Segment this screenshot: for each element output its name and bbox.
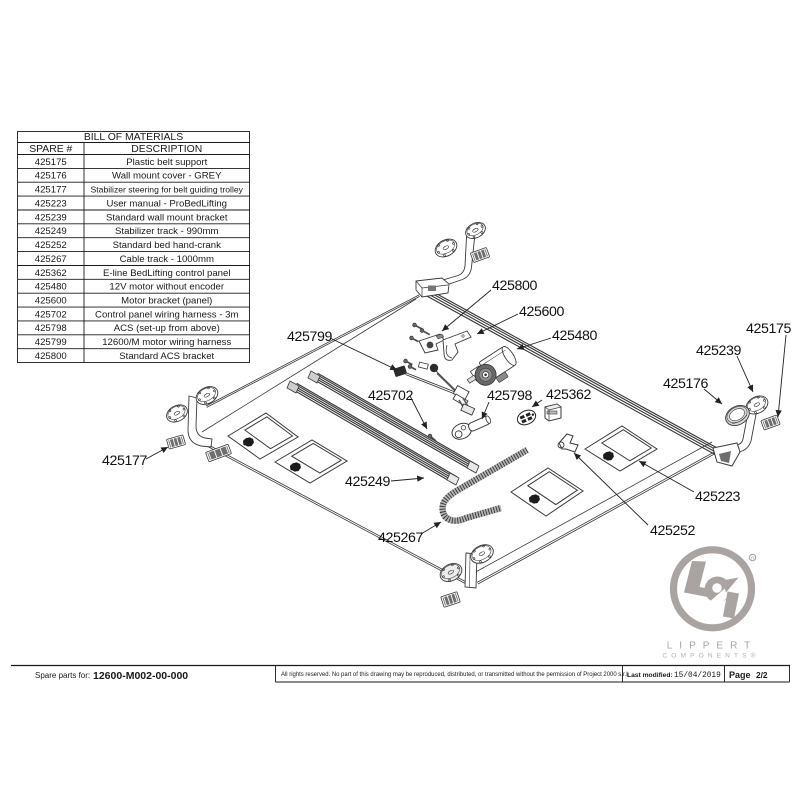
svg-text:425702: 425702	[368, 388, 413, 404]
svg-text:12600/M motor wiring harness: 12600/M motor wiring harness	[102, 337, 231, 348]
svg-text:425600: 425600	[35, 296, 67, 307]
svg-text:Cable track - 1000mm: Cable track - 1000mm	[120, 254, 214, 265]
svg-text:E-line BedLifting control pane: E-line BedLifting control panel	[103, 268, 230, 279]
svg-text:LIPPERT: LIPPERT	[667, 641, 758, 652]
svg-text:425252: 425252	[35, 240, 67, 251]
svg-text:425176: 425176	[663, 376, 708, 392]
svg-text:425799: 425799	[35, 337, 67, 348]
svg-text:425239: 425239	[696, 343, 741, 359]
svg-text:12V motor without encoder: 12V motor without encoder	[109, 282, 224, 293]
svg-text:Standard wall mount bracket: Standard wall mount bracket	[106, 212, 228, 223]
svg-text:DESCRIPTION: DESCRIPTION	[131, 144, 202, 155]
svg-text:Spare parts for:: Spare parts for:	[35, 671, 90, 680]
svg-text:15/04/2019: 15/04/2019	[674, 672, 721, 680]
svg-text:COMPONENTS®: COMPONENTS®	[662, 652, 759, 660]
svg-text:425223: 425223	[695, 489, 740, 505]
svg-text:425800: 425800	[35, 351, 67, 362]
svg-text:Stabilizer steering for belt g: Stabilizer steering for belt guiding tro…	[91, 185, 244, 195]
svg-text:425175: 425175	[746, 321, 791, 337]
svg-text:425798: 425798	[487, 388, 532, 404]
svg-text:2/2: 2/2	[756, 670, 768, 680]
svg-text:425799: 425799	[287, 329, 332, 345]
svg-text:Control panel wiring harness -: Control panel wiring harness - 3m	[95, 309, 238, 320]
svg-text:BILL OF MATERIALS: BILL OF MATERIALS	[84, 132, 183, 143]
svg-text:ACS (set-up from above): ACS (set-up from above)	[114, 323, 220, 334]
svg-text:425800: 425800	[492, 278, 537, 294]
svg-text:Page: Page	[729, 670, 751, 680]
svg-text:425175: 425175	[35, 157, 67, 168]
svg-text:Wall mount cover - GREY: Wall mount cover - GREY	[112, 171, 222, 182]
svg-text:All rights reserved. No part o: All rights reserved. No part of this dra…	[281, 672, 630, 678]
svg-text:425480: 425480	[552, 328, 597, 344]
svg-text:425252: 425252	[650, 523, 695, 539]
svg-text:425249: 425249	[35, 226, 67, 237]
svg-text:425362: 425362	[546, 387, 591, 403]
svg-text:425239: 425239	[35, 212, 67, 223]
svg-text:Motor bracket (panel): Motor bracket (panel)	[121, 296, 212, 307]
svg-text:Stabilizer track - 990mm: Stabilizer track - 990mm	[115, 226, 218, 237]
svg-text:425267: 425267	[35, 254, 67, 265]
svg-text:SPARE #: SPARE #	[29, 144, 72, 155]
svg-text:Last modified:: Last modified:	[627, 672, 673, 679]
svg-text:425267: 425267	[378, 530, 423, 546]
svg-text:425702: 425702	[35, 309, 67, 320]
svg-text:425600: 425600	[519, 304, 564, 320]
svg-text:425177: 425177	[35, 185, 67, 196]
svg-text:Standard bed hand-crank: Standard bed hand-crank	[113, 240, 221, 251]
svg-text:425176: 425176	[35, 171, 67, 182]
svg-text:Standard ACS bracket: Standard ACS bracket	[119, 351, 214, 362]
svg-text:425249: 425249	[345, 474, 390, 490]
svg-text:Plastic belt support: Plastic belt support	[126, 157, 207, 168]
svg-text:425223: 425223	[35, 198, 67, 209]
svg-text:425798: 425798	[35, 323, 67, 334]
svg-text:425480: 425480	[35, 282, 67, 293]
svg-text:User manual - ProBedLifting: User manual - ProBedLifting	[106, 198, 227, 209]
svg-text:12600-M002-00-000: 12600-M002-00-000	[93, 670, 188, 682]
svg-text:425177: 425177	[102, 453, 147, 469]
svg-text:425362: 425362	[35, 268, 67, 279]
